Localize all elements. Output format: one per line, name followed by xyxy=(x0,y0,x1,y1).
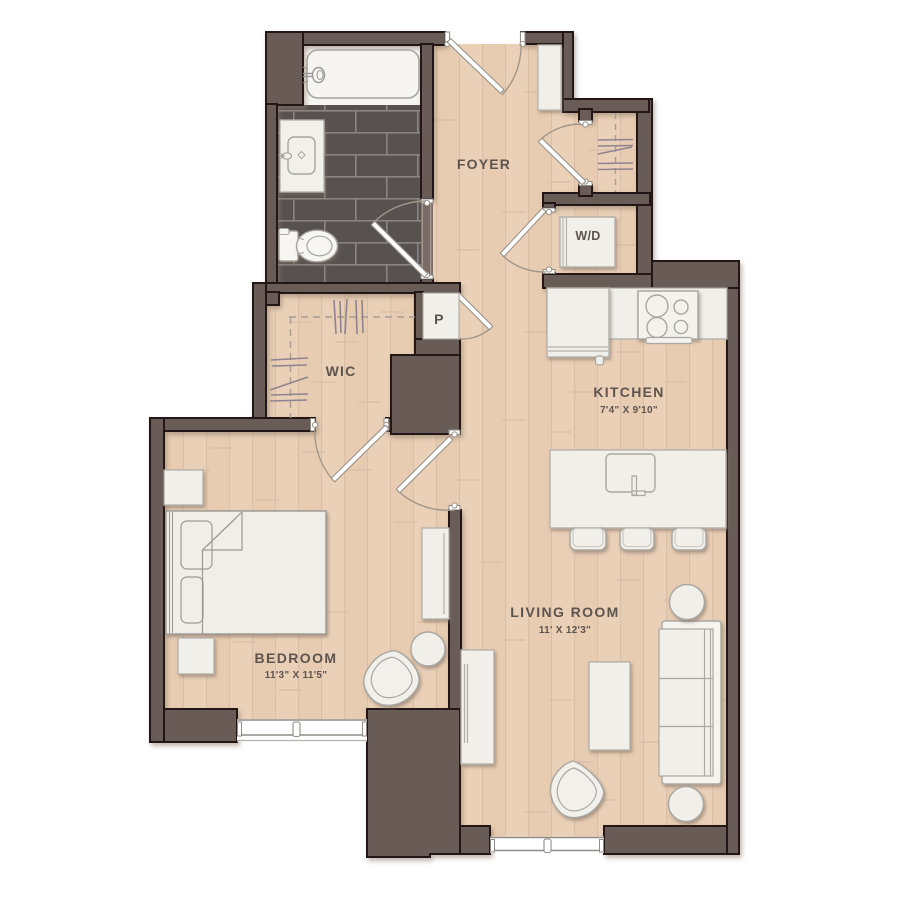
svg-text:BEDROOM: BEDROOM xyxy=(255,650,338,666)
svg-text:LIVING ROOM: LIVING ROOM xyxy=(510,604,620,620)
svg-text:WIC: WIC xyxy=(326,363,357,379)
svg-text:KITCHEN: KITCHEN xyxy=(593,384,664,400)
svg-text:7'4" X 9'10": 7'4" X 9'10" xyxy=(600,405,658,416)
svg-text:W/D: W/D xyxy=(575,229,600,243)
svg-text:11'3" X 11'5": 11'3" X 11'5" xyxy=(265,670,328,681)
svg-text:P: P xyxy=(434,311,444,327)
svg-text:11' X 12'3": 11' X 12'3" xyxy=(539,625,591,636)
svg-text:FOYER: FOYER xyxy=(457,156,511,172)
